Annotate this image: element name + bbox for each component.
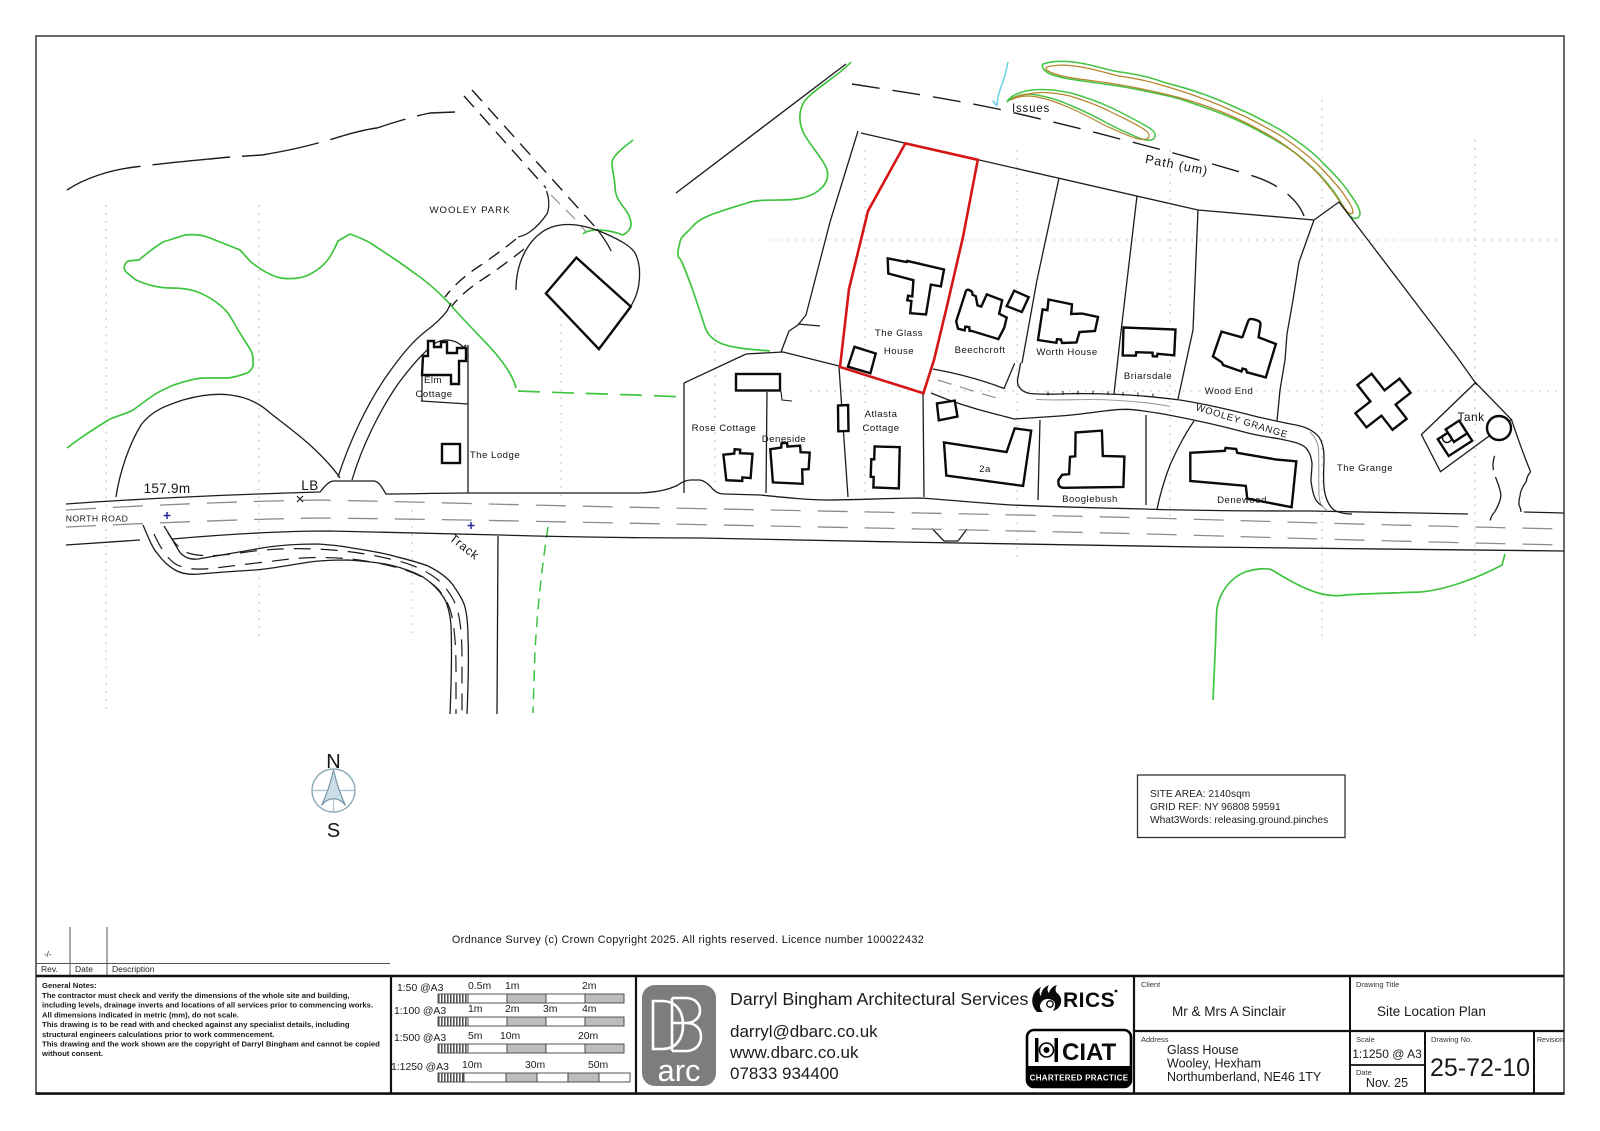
svg-text:General Notes:: General Notes:	[42, 981, 97, 990]
svg-text:Darryl Bingham Architectural S: Darryl Bingham Architectural Services	[730, 989, 1029, 1009]
svg-text:including levels, drainage inv: including levels, drainage inverts and l…	[42, 1001, 373, 1010]
svg-text:SITE AREA: 2140sqm: SITE AREA: 2140sqm	[1150, 789, 1250, 800]
svg-text:Atlasta: Atlasta	[865, 409, 898, 420]
svg-text:5m: 5m	[468, 1031, 482, 1042]
svg-text:All dimensions indicated in me: All dimensions indicated in metric (mm),…	[42, 1010, 239, 1019]
svg-text:1:50 @A3: 1:50 @A3	[397, 983, 444, 994]
svg-text:0.5m: 0.5m	[468, 981, 491, 992]
svg-text:Drawing Title: Drawing Title	[1356, 980, 1399, 989]
svg-text:House: House	[884, 346, 914, 357]
svg-text:Deneside: Deneside	[762, 434, 807, 445]
svg-text:2a: 2a	[979, 464, 991, 475]
svg-text:07833 934400: 07833 934400	[730, 1064, 839, 1083]
svg-text:Mr & Mrs A Sinclair: Mr & Mrs A Sinclair	[1172, 1004, 1287, 1019]
svg-text:20m: 20m	[578, 1031, 598, 1042]
svg-text:www.dbarc.co.uk: www.dbarc.co.uk	[729, 1043, 859, 1062]
svg-text:Drawing No.: Drawing No.	[1431, 1035, 1472, 1044]
svg-text:1m: 1m	[468, 1004, 482, 1015]
svg-text:Wooley, Hexham: Wooley, Hexham	[1167, 1057, 1261, 1071]
svg-text:Elm: Elm	[424, 375, 442, 386]
svg-text:Description: Description	[112, 964, 155, 974]
svg-text:10m: 10m	[500, 1031, 520, 1042]
svg-text:Issues: Issues	[1012, 103, 1050, 115]
svg-text:Booglebush: Booglebush	[1062, 494, 1118, 505]
svg-text:The Lodge: The Lodge	[470, 450, 520, 461]
svg-text:1:1250 @A3: 1:1250 @A3	[391, 1062, 449, 1073]
svg-text:Tank: Tank	[1457, 410, 1485, 424]
svg-text:Denewood: Denewood	[1217, 495, 1267, 506]
svg-text:3m: 3m	[543, 1004, 557, 1015]
svg-text:157.9m: 157.9m	[144, 481, 191, 496]
svg-text:1:1250 @ A3: 1:1250 @ A3	[1352, 1047, 1422, 1061]
svg-text:NORTH ROAD: NORTH ROAD	[66, 514, 129, 524]
svg-text:structural engineers calculati: structural engineers calculations prior …	[42, 1030, 274, 1039]
svg-text:Rev.: Rev.	[41, 964, 58, 974]
svg-text:Beechcroft: Beechcroft	[955, 345, 1006, 356]
svg-text:10m: 10m	[462, 1060, 482, 1071]
svg-text:Cottage: Cottage	[862, 423, 899, 434]
svg-text:2m: 2m	[505, 1004, 519, 1015]
svg-text:Site Location Plan: Site Location Plan	[1377, 1004, 1486, 1019]
svg-text:Rose Cottage: Rose Cottage	[692, 423, 757, 434]
svg-text:50m: 50m	[588, 1060, 608, 1071]
svg-text:Northumberland, NE46 1TY: Northumberland, NE46 1TY	[1167, 1070, 1322, 1084]
svg-text:30m: 30m	[525, 1060, 545, 1071]
svg-text:Wood End: Wood End	[1205, 386, 1254, 397]
svg-text:Ordnance Survey (c) Crown Copy: Ordnance Survey (c) Crown Copyright 2025…	[452, 934, 924, 946]
svg-text:Worth House: Worth House	[1036, 347, 1097, 358]
svg-text:Glass House: Glass House	[1167, 1043, 1239, 1057]
svg-text:2m: 2m	[582, 981, 596, 992]
svg-text:S: S	[327, 820, 340, 842]
svg-text:Address: Address	[1141, 1035, 1169, 1044]
svg-text:The Grange: The Grange	[1337, 463, 1393, 474]
svg-text:Cottage: Cottage	[415, 389, 452, 400]
svg-text:This drawing is to be read wit: This drawing is to be read with and chec…	[42, 1020, 350, 1029]
svg-text:Scale: Scale	[1356, 1035, 1375, 1044]
svg-text:Client: Client	[1141, 980, 1161, 989]
svg-text:1:100 @A3: 1:100 @A3	[394, 1006, 446, 1017]
svg-text:WOOLEY PARK: WOOLEY PARK	[429, 205, 510, 216]
svg-text:arc: arc	[657, 1053, 700, 1088]
svg-text:1m: 1m	[505, 981, 519, 992]
svg-text:Revision: Revision	[1537, 1037, 1564, 1044]
svg-text:darryl@dbarc.co.uk: darryl@dbarc.co.uk	[730, 1022, 878, 1041]
svg-text:What3Words: releasing.ground.p: What3Words: releasing.ground.pinches	[1150, 815, 1328, 826]
svg-text:-/-: -/-	[44, 950, 52, 959]
svg-text:CIAT: CIAT	[1062, 1039, 1117, 1066]
svg-text:Date: Date	[75, 964, 93, 974]
svg-text:N: N	[326, 751, 340, 773]
svg-text:Nov. 25: Nov. 25	[1366, 1076, 1408, 1090]
svg-text:CHARTERED PRACTICE: CHARTERED PRACTICE	[1030, 1074, 1129, 1083]
svg-text:1:500 @A3: 1:500 @A3	[394, 1033, 446, 1044]
svg-text:RICS: RICS	[1063, 989, 1115, 1012]
svg-text:25-72-10: 25-72-10	[1430, 1054, 1530, 1082]
svg-text:LB: LB	[301, 478, 319, 493]
svg-text:GRID REF: NY 96808 59591: GRID REF: NY 96808 59591	[1150, 802, 1281, 813]
svg-text:The Glass: The Glass	[875, 328, 923, 339]
svg-text:4m: 4m	[582, 1004, 596, 1015]
svg-text:without consent.: without consent.	[41, 1049, 103, 1058]
svg-text:Briarsdale: Briarsdale	[1124, 371, 1172, 382]
svg-text:The contractor must check and: The contractor must check and verify the…	[42, 991, 350, 1000]
svg-text:This drawing and the work show: This drawing and the work shown are the …	[42, 1040, 380, 1049]
